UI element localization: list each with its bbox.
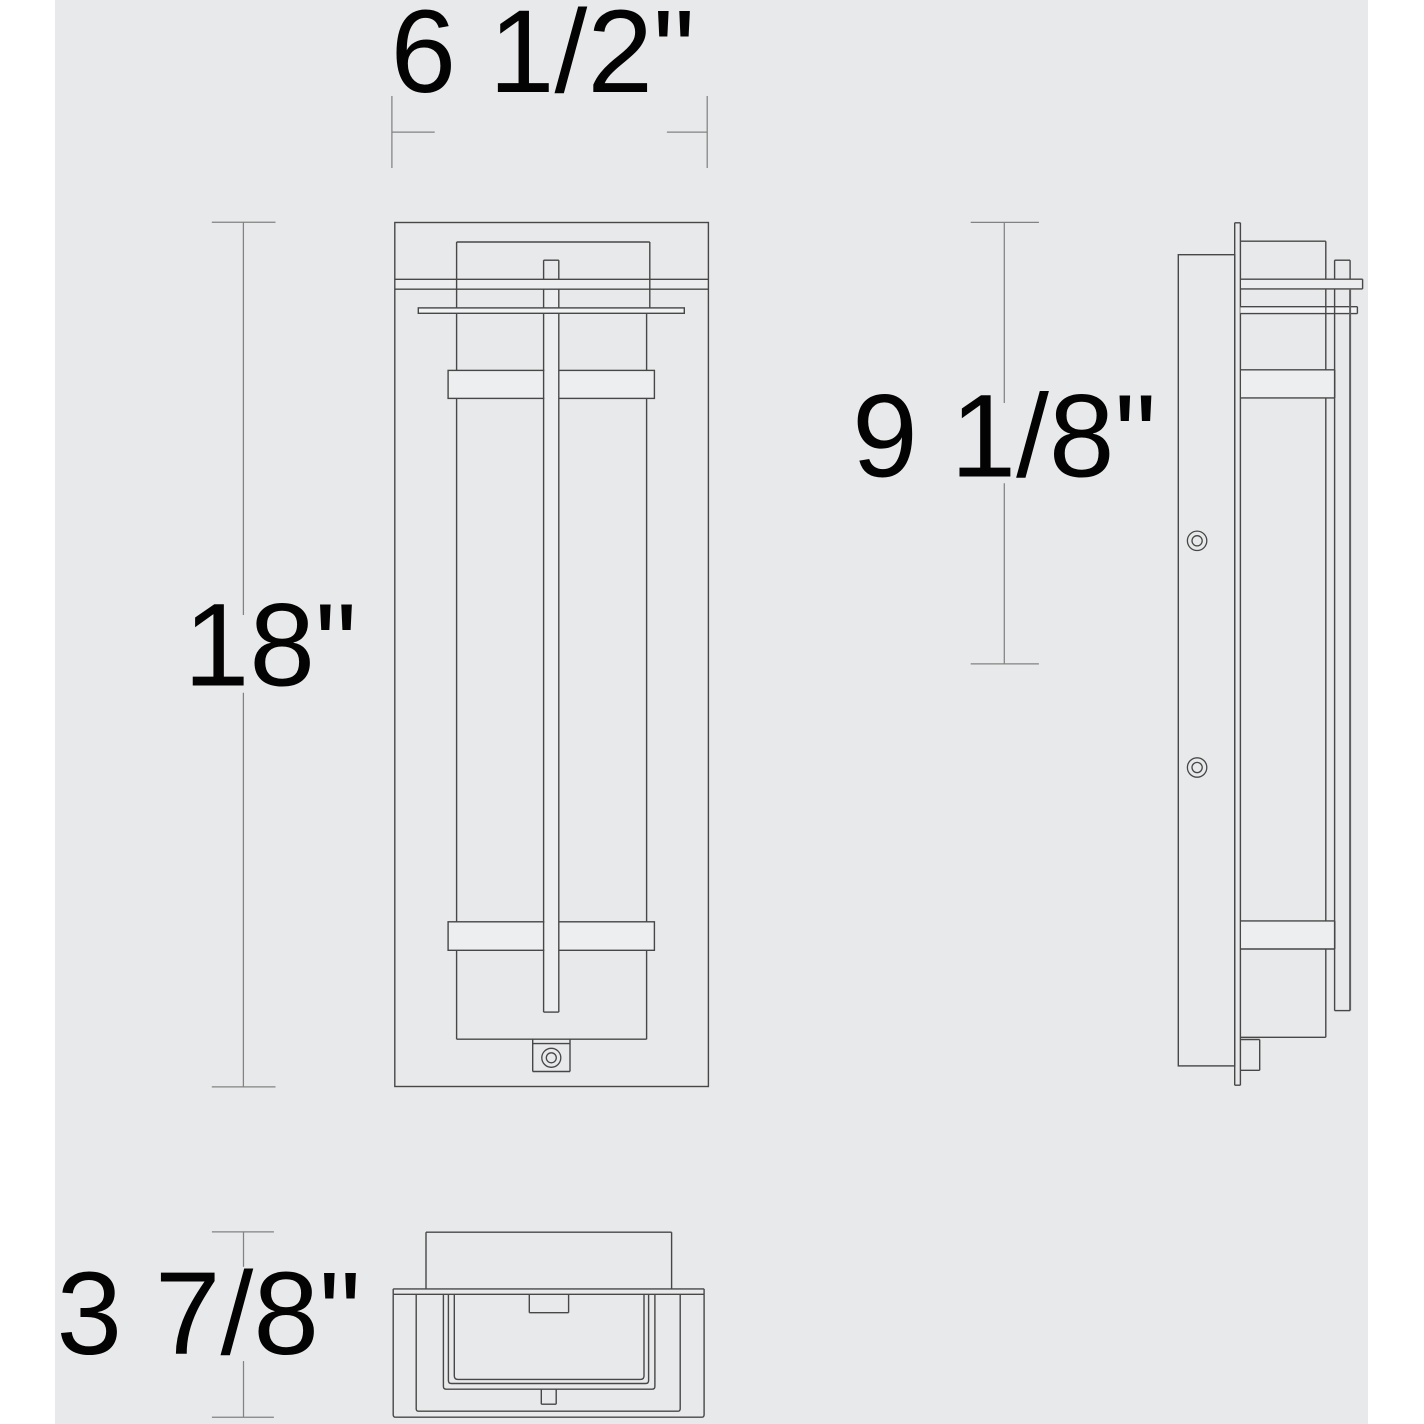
svg-text:6 1/2": 6 1/2": [391, 0, 695, 118]
svg-text:9 1/8": 9 1/8": [852, 370, 1156, 502]
svg-text:18": 18": [184, 579, 357, 711]
svg-text:3 7/8": 3 7/8": [57, 1248, 361, 1380]
